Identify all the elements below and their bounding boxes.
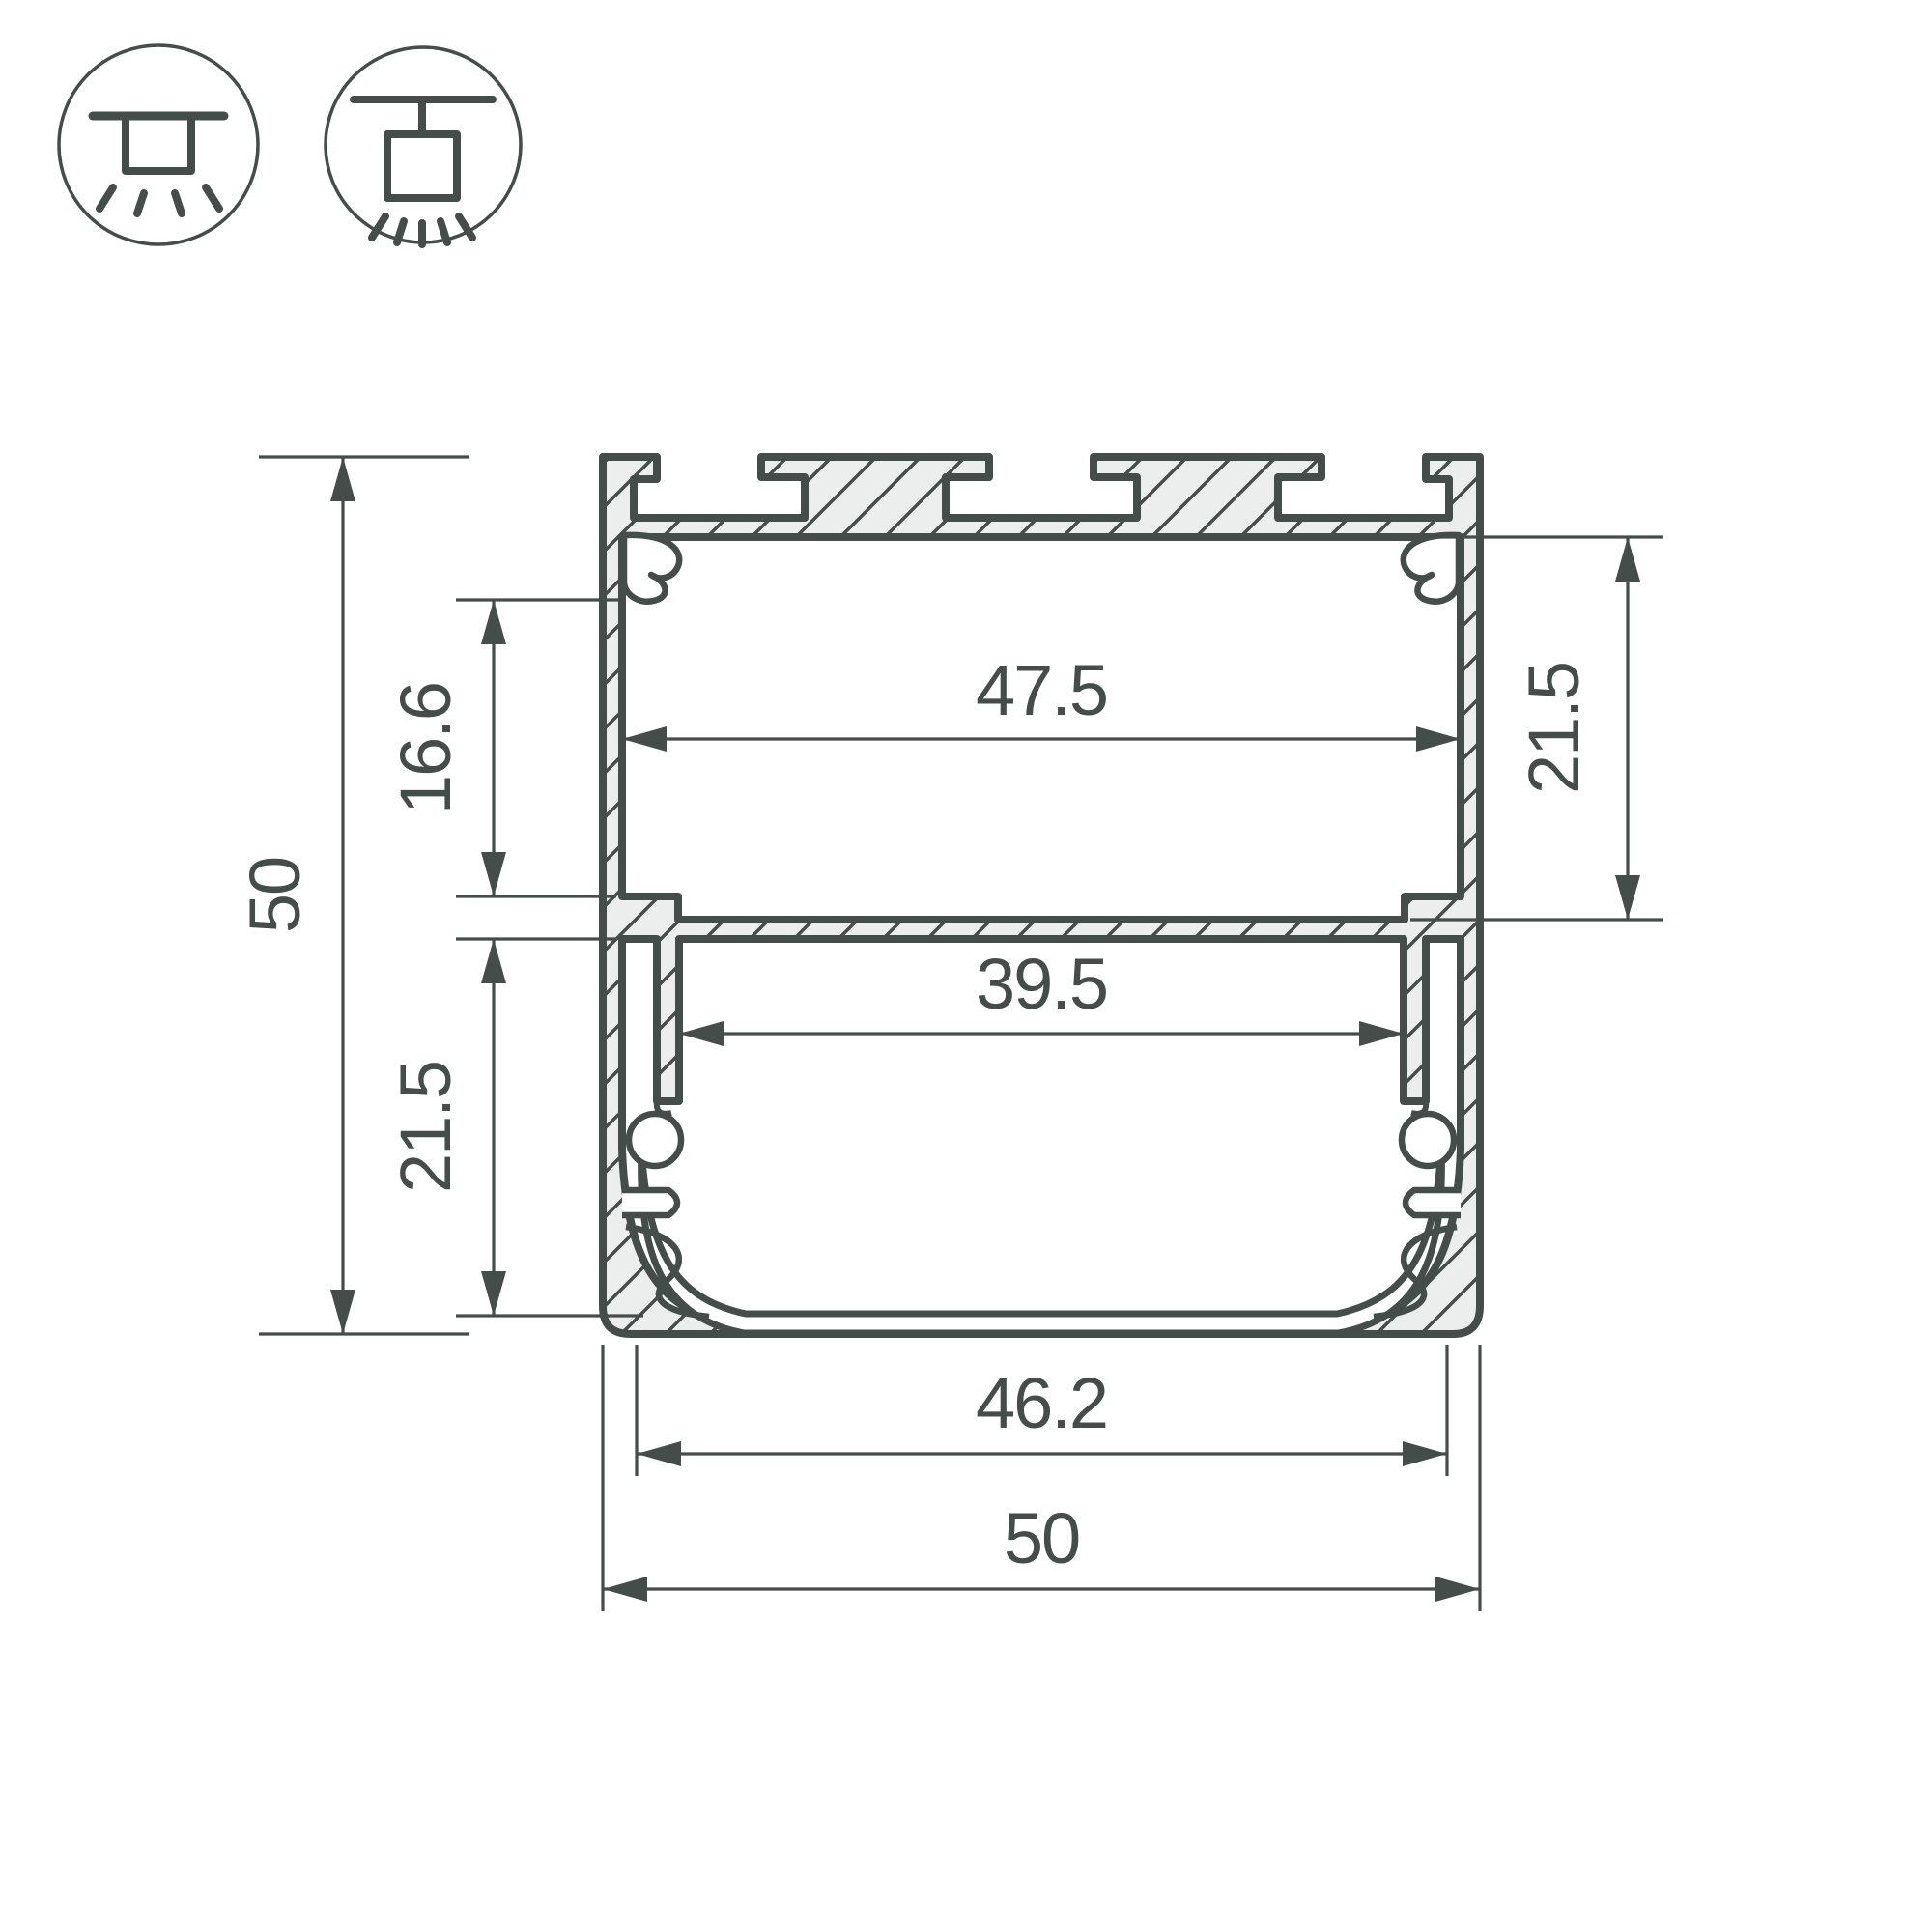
dim-inner-width-middle: 39.5 (976, 944, 1107, 1024)
dim-inner-width-top: 47.5 (976, 650, 1107, 730)
dim-upper-chamber-depth-right: 21.5 (1514, 663, 1594, 794)
dim-width-overall: 50 (1004, 1498, 1079, 1578)
drawing-canvas: 50 16.6 21.5 47.5 21.5 39.5 46.2 50 (0, 0, 1932, 1932)
dim-inner-width-bottom: 46.2 (976, 1363, 1107, 1443)
dim-top-chamber-depth: 16.6 (385, 683, 466, 814)
mount-icons (59, 45, 521, 244)
dim-bottom-chamber-depth: 21.5 (385, 1062, 466, 1193)
light-rays (372, 216, 472, 244)
profile-drawing-svg: 50 16.6 21.5 47.5 21.5 39.5 46.2 50 (0, 0, 1932, 1932)
surface-mount-icon (59, 45, 258, 244)
light-rays (99, 187, 219, 213)
profile-body (603, 457, 1480, 1334)
pendant-mount-icon (326, 47, 521, 244)
dim-height-overall: 50 (235, 858, 315, 933)
